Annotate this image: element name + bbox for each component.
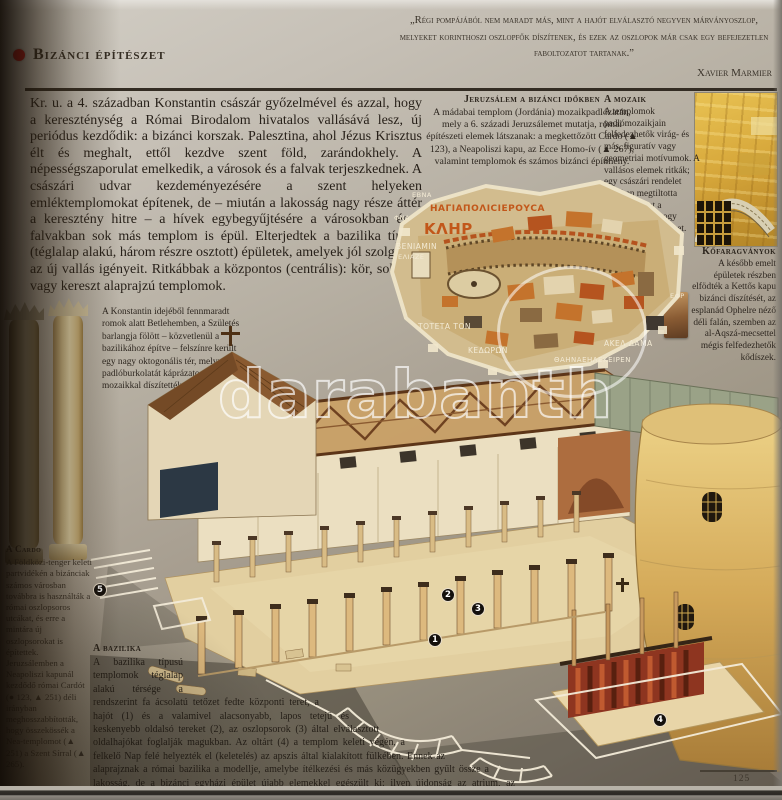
footer-rule <box>700 770 777 772</box>
greek-label: ΗΑΓΙΑΠΟΛΙCΙΕΡΟΥCΑ <box>430 204 545 214</box>
greek-label: ΒΕΝΙΑΜΙΝ <box>396 242 437 251</box>
marble-column-left <box>4 300 44 564</box>
column-shaft <box>53 316 83 544</box>
gate-arch-drawing <box>695 93 779 248</box>
stone-carvings-title: Kőfaragványok <box>686 246 776 257</box>
wrap-spacer <box>379 711 515 725</box>
wrap-spacer <box>445 739 515 752</box>
column-shaft <box>9 320 39 548</box>
greek-label: ΦΝΑ <box>394 214 410 222</box>
chapter-header: Bizánci építészet <box>13 46 166 64</box>
quote-attribution: Xavier Marmier <box>392 65 776 82</box>
red-bullet-icon <box>13 49 25 61</box>
wrap-spacer <box>319 683 515 697</box>
basilica-title: A bazilika <box>93 643 515 654</box>
scanned-book-page: Bizánci építészet „Régi pompájából nem m… <box>0 0 782 800</box>
cardo-section: A Cardo A Földközi-tenger keleti partvid… <box>6 544 92 770</box>
greek-label: ΕΦΡ <box>670 292 685 300</box>
dark-roof-panel <box>160 462 218 518</box>
wrap-spacer <box>349 697 515 711</box>
book-bottom-edge <box>0 786 782 800</box>
quote-text: „Régi pompájából nem maradt más, mint a … <box>392 13 776 63</box>
gable-cross <box>229 326 232 346</box>
greek-label: ΕΒΝΑ <box>412 191 432 199</box>
cardo-title: A Cardo <box>6 544 92 555</box>
cardo-body: A Földközi-tenger keleti partvidékén a b… <box>6 557 92 770</box>
golden-gate-photo <box>694 92 778 247</box>
page-number: 125 <box>733 774 750 784</box>
wrap-spacer <box>183 656 515 683</box>
marker-altar: 4 <box>653 713 667 727</box>
wrap-spacer <box>489 752 515 765</box>
marker-nave: 1 <box>428 633 442 647</box>
marker-colonnade: 3 <box>471 602 485 616</box>
epigraph-quote: „Régi pompájából nem maradt más, mint a … <box>392 13 776 81</box>
intro-paragraph: Kr. u. a 4. században Konstantin császár… <box>30 96 422 295</box>
header-rule <box>25 88 777 91</box>
page-right-edge <box>773 0 782 800</box>
basilica-body-wrap: A bazilika típusú templomok téglalap ala… <box>93 656 515 800</box>
chapter-title: Bizánci építészet <box>33 46 166 64</box>
greek-label: ΚΛΗΡ <box>424 220 473 238</box>
corinthian-capital <box>48 296 88 316</box>
marker-narthex: 5 <box>93 583 107 597</box>
basilica-section: A bazilika A bazilika típusú templomok t… <box>93 643 515 800</box>
greek-label: ΕΛΙΑΖΕ <box>398 253 424 261</box>
corinthian-capital <box>4 300 44 320</box>
mosaic-note-title: A mozaik <box>604 94 700 105</box>
marble-column-right <box>48 296 88 560</box>
wrap-spacer <box>405 725 515 739</box>
scan-top-edge <box>0 0 782 10</box>
marker-side-space: 2 <box>441 588 455 602</box>
